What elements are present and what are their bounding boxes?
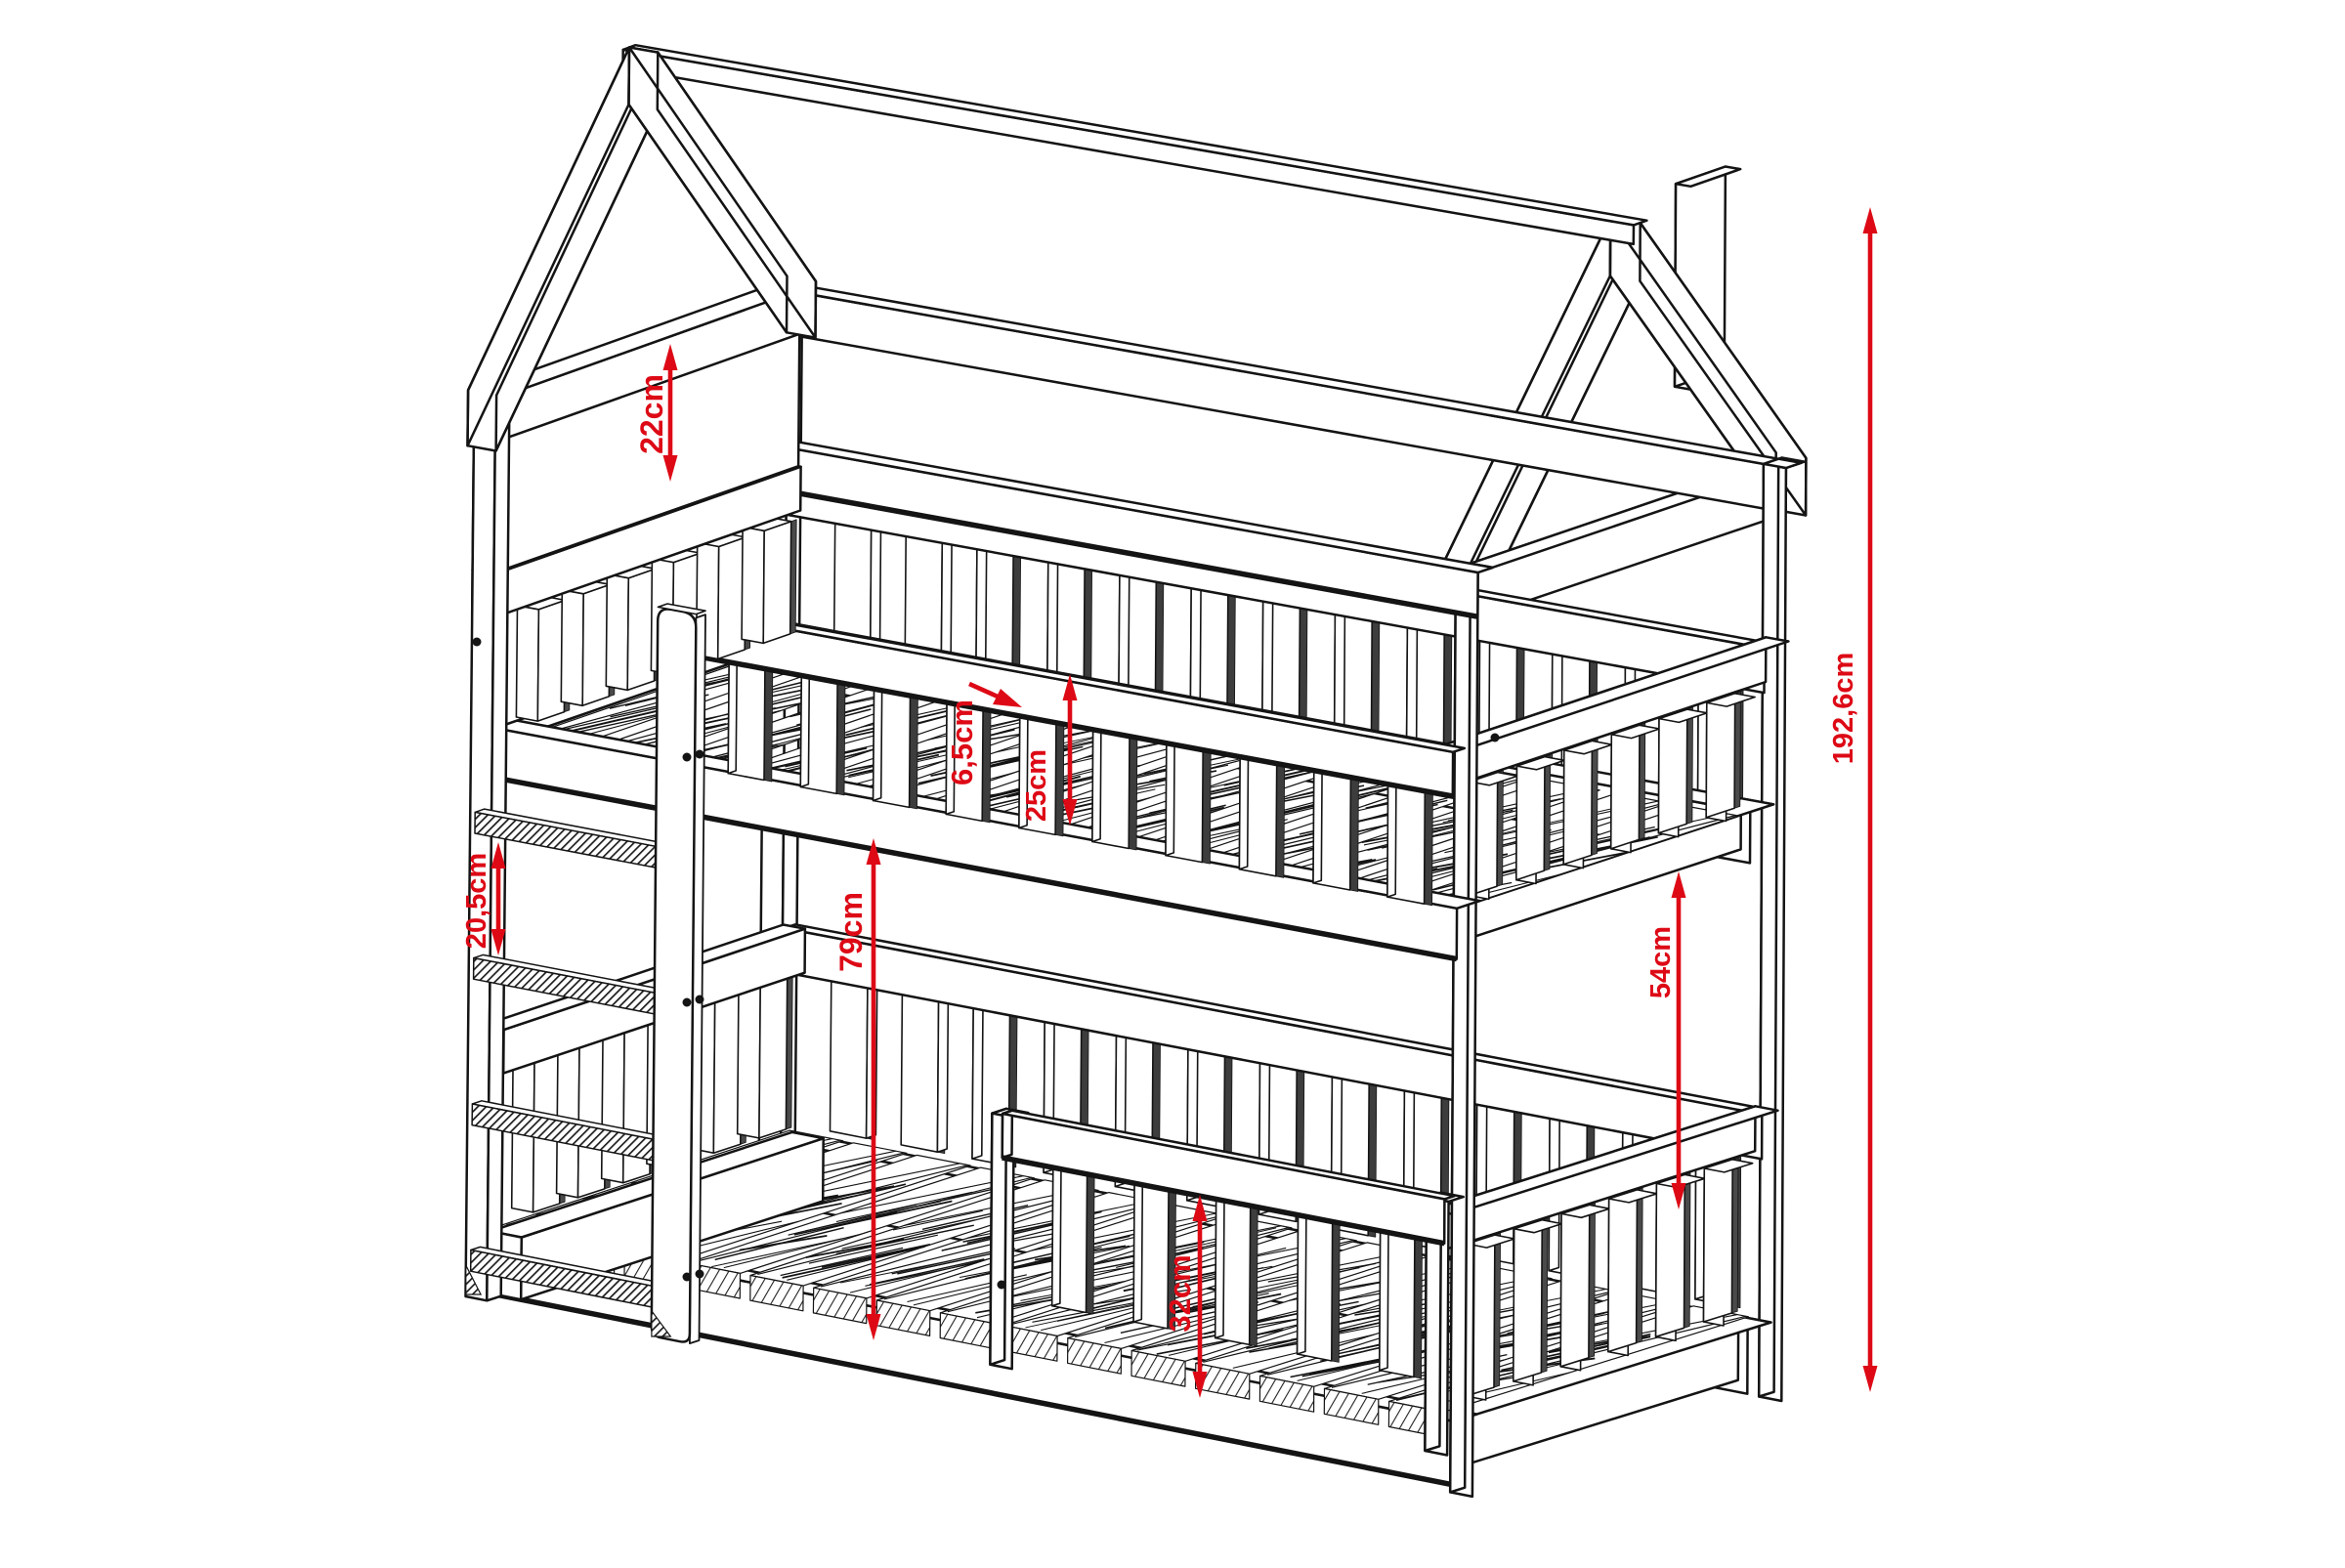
svg-text:6,5cm: 6,5cm <box>945 699 979 785</box>
svg-text:20,5cm: 20,5cm <box>461 853 492 949</box>
svg-text:79cm: 79cm <box>833 892 869 972</box>
svg-text:22cm: 22cm <box>634 374 669 454</box>
svg-text:32cm: 32cm <box>1163 1254 1197 1332</box>
svg-text:25cm: 25cm <box>1021 749 1052 822</box>
svg-text:54cm: 54cm <box>1645 926 1677 998</box>
svg-text:192,6cm: 192,6cm <box>1828 653 1859 765</box>
